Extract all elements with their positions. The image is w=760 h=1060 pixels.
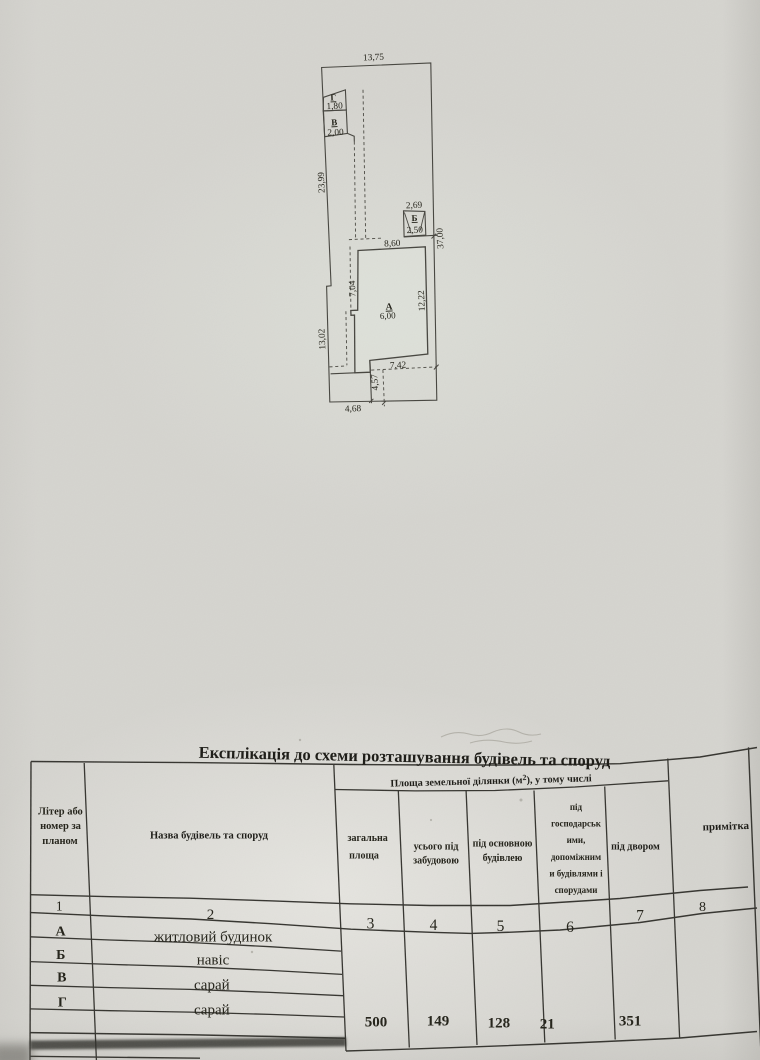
- svg-text:планом: планом: [42, 836, 77, 847]
- svg-text:8: 8: [699, 900, 706, 915]
- svg-text:2: 2: [207, 907, 215, 923]
- svg-text:під: під: [570, 802, 583, 812]
- svg-text:сарай: сарай: [194, 977, 230, 993]
- svg-text:1: 1: [56, 899, 63, 914]
- svg-text:6: 6: [566, 919, 574, 936]
- svg-text:будівлею: будівлею: [483, 853, 523, 864]
- svg-text:спорудами: спорудами: [555, 885, 598, 895]
- svg-text:Площа земельної ділянки (м2),: Площа земельної ділянки (м2), у тому чис…: [390, 771, 592, 789]
- svg-text:примітка: примітка: [702, 820, 749, 834]
- svg-text:допоміжним: допоміжним: [551, 852, 601, 862]
- svg-text:149: 149: [427, 1014, 450, 1030]
- svg-text:загальна: загальна: [347, 833, 387, 844]
- svg-text:21: 21: [540, 1017, 555, 1033]
- svg-text:площа: площа: [349, 851, 379, 862]
- svg-text:А: А: [55, 924, 66, 939]
- svg-text:500: 500: [365, 1015, 388, 1031]
- svg-text:7: 7: [636, 908, 644, 925]
- svg-text:5: 5: [497, 918, 505, 935]
- svg-text:Г: Г: [58, 995, 67, 1010]
- svg-text:ими,: ими,: [567, 835, 586, 845]
- svg-text:Б: Б: [56, 948, 65, 963]
- svg-text:Літер або: Літер або: [38, 807, 83, 818]
- svg-text:житловий будинок: житловий будинок: [153, 930, 273, 946]
- svg-text:усього під: усього під: [414, 842, 459, 853]
- svg-text:забудовою: забудовою: [413, 856, 459, 867]
- svg-text:під двором: під двором: [611, 842, 660, 853]
- svg-text:и будівлями і: и будівлями і: [549, 868, 603, 878]
- svg-text:навіс: навіс: [197, 953, 230, 969]
- svg-text:Назва будівель та споруд: Назва будівель та споруд: [150, 831, 269, 842]
- svg-text:128: 128: [488, 1016, 511, 1032]
- svg-text:господарськ: господарськ: [551, 819, 602, 829]
- svg-text:під основною: під основною: [473, 839, 533, 850]
- svg-text:4: 4: [430, 917, 438, 934]
- svg-text:В: В: [57, 971, 66, 986]
- svg-text:3: 3: [367, 916, 375, 933]
- svg-text:351: 351: [619, 1014, 642, 1030]
- svg-text:сарай: сарай: [194, 1002, 230, 1018]
- svg-text:Експлікація до схеми розташува: Експлікація до схеми розташування будіве…: [199, 743, 612, 771]
- svg-text:номер за: номер за: [40, 821, 82, 832]
